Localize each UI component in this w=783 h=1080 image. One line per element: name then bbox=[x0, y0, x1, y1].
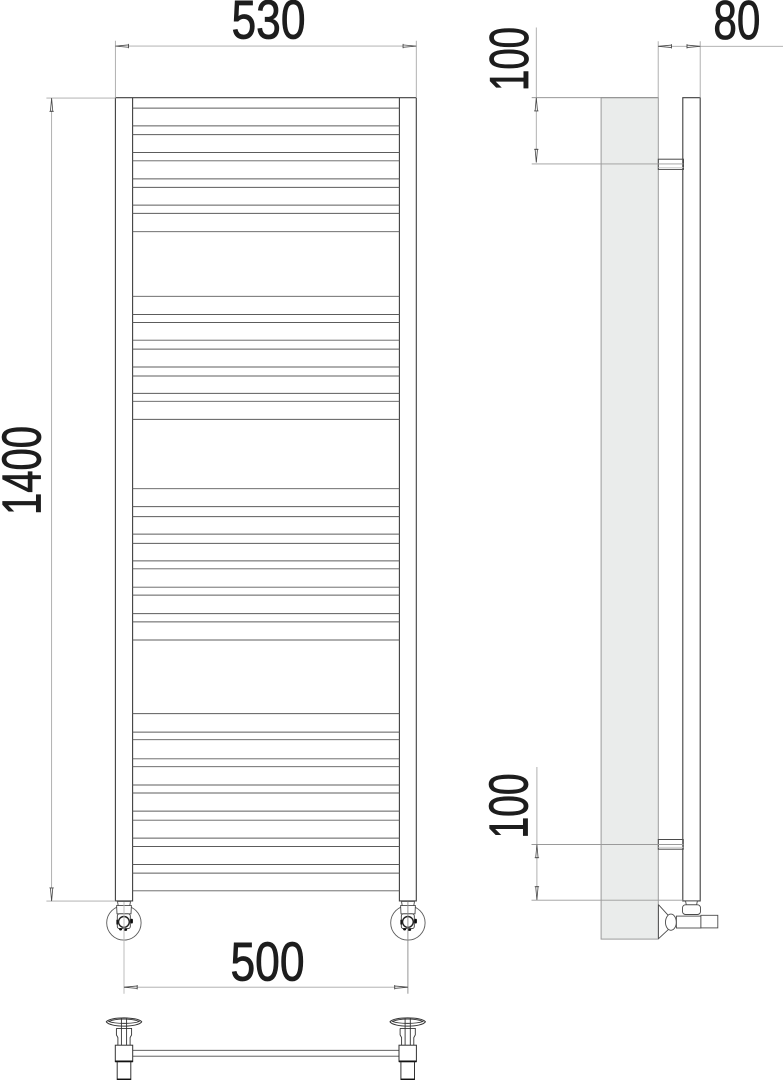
svg-text:1400: 1400 bbox=[0, 426, 53, 515]
svg-text:500: 500 bbox=[231, 931, 305, 993]
svg-text:100: 100 bbox=[477, 774, 539, 839]
svg-text:80: 80 bbox=[713, 0, 760, 51]
svg-text:100: 100 bbox=[478, 27, 540, 91]
svg-text:530: 530 bbox=[232, 0, 306, 51]
